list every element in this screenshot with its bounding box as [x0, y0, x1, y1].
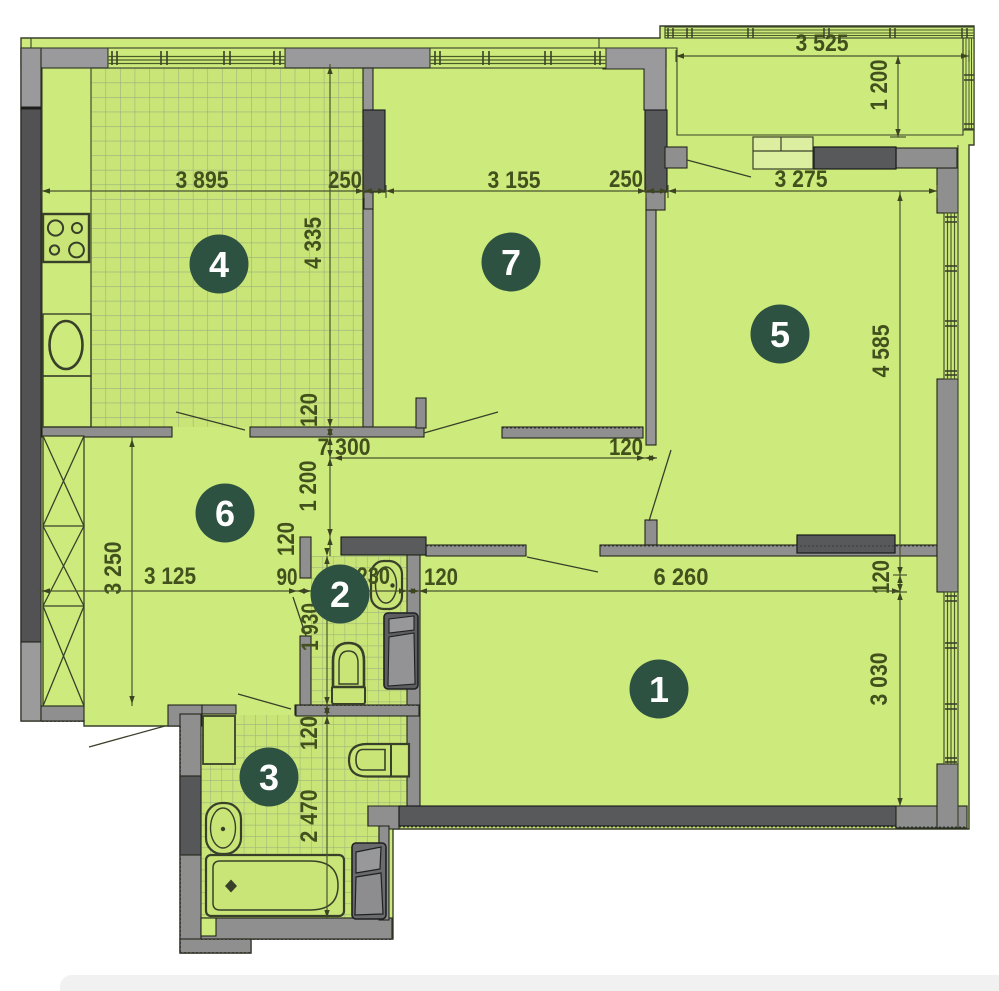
svg-text:3: 3	[259, 757, 279, 798]
svg-text:1 200: 1 200	[866, 60, 893, 111]
svg-text:120: 120	[273, 522, 300, 556]
svg-text:3 030: 3 030	[866, 653, 893, 706]
svg-text:1 200: 1 200	[295, 461, 322, 512]
svg-text:3 895: 3 895	[176, 167, 229, 194]
svg-text:3 125: 3 125	[144, 563, 196, 590]
svg-text:3 155: 3 155	[488, 167, 541, 194]
svg-text:120: 120	[609, 434, 643, 461]
svg-text:5: 5	[770, 314, 790, 355]
svg-text:3 250: 3 250	[100, 542, 127, 595]
svg-text:120: 120	[296, 716, 323, 750]
svg-text:250: 250	[328, 167, 362, 194]
svg-text:1: 1	[649, 669, 669, 710]
svg-text:4: 4	[209, 244, 229, 285]
svg-text:4 585: 4 585	[868, 325, 895, 378]
svg-text:250: 250	[609, 166, 643, 193]
svg-text:6: 6	[215, 493, 235, 534]
svg-text:90: 90	[277, 564, 298, 591]
svg-text:2 470: 2 470	[296, 790, 323, 843]
svg-text:120: 120	[868, 560, 895, 594]
svg-text:6 260: 6 260	[654, 564, 709, 591]
svg-text:120: 120	[424, 564, 458, 591]
svg-text:3 275: 3 275	[775, 166, 828, 193]
svg-text:2: 2	[330, 574, 350, 615]
svg-text:120: 120	[296, 393, 323, 427]
svg-text:7: 7	[501, 242, 521, 283]
svg-text:7 300: 7 300	[318, 434, 371, 461]
svg-text:4 335: 4 335	[300, 217, 327, 269]
svg-text:3 525: 3 525	[796, 30, 849, 57]
